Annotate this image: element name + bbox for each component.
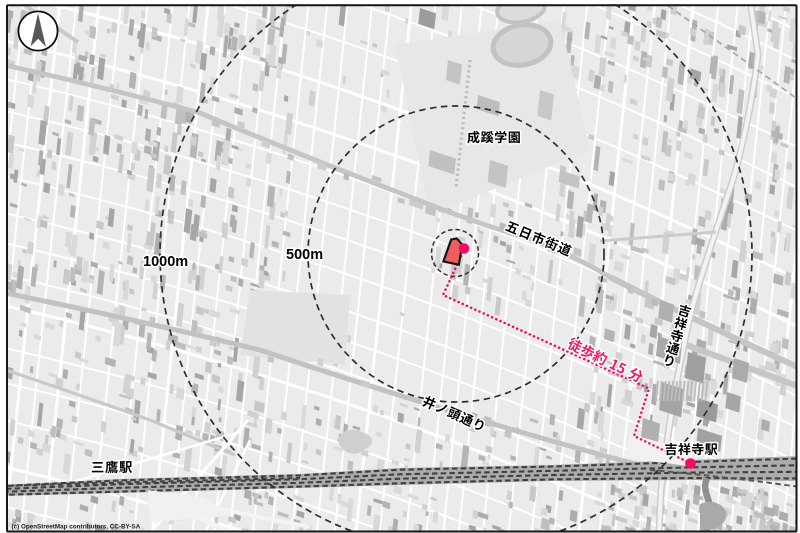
svg-text:(c) OpenStreetMap contributors: (c) OpenStreetMap contributors, CC-BY-SA	[12, 524, 141, 531]
svg-text:500m: 500m	[286, 247, 323, 263]
svg-text:1000m: 1000m	[143, 254, 188, 270]
